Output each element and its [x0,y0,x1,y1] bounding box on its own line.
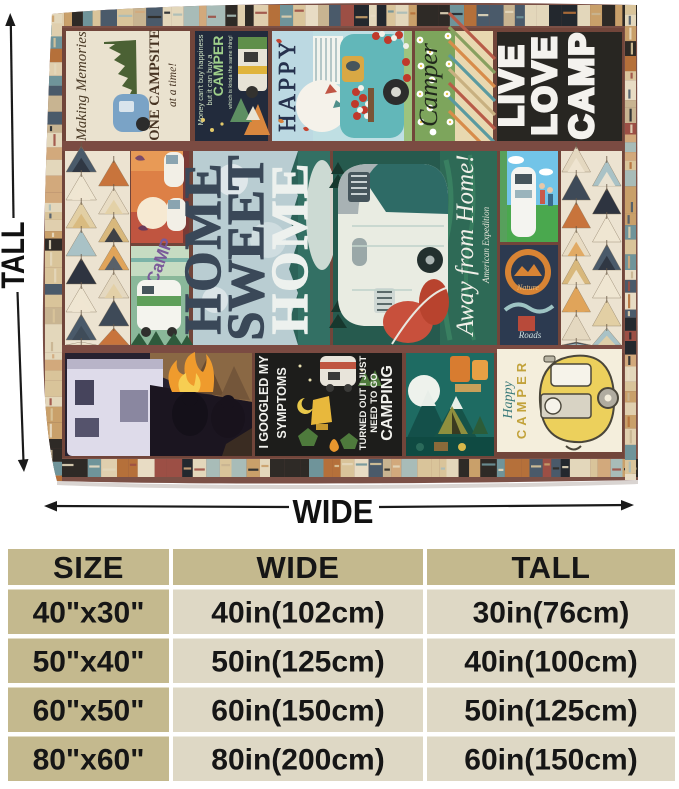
svg-text:at a time!: at a time! [167,63,179,107]
svg-text:30in(76cm): 30in(76cm) [473,597,630,630]
svg-text:HOME: HOME [262,162,319,335]
svg-text:50"x40": 50"x40" [33,646,145,679]
svg-text:SIZE: SIZE [53,550,124,585]
svg-text:which is kinda the same thing!: which is kinda the same thing! [228,35,234,110]
svg-text:WIDE: WIDE [293,493,374,530]
svg-text:WIDE: WIDE [257,550,340,585]
svg-text:CAMPER: CAMPER [514,359,529,439]
svg-text:40in(102cm): 40in(102cm) [211,597,384,630]
svg-text:50in(125cm): 50in(125cm) [464,695,637,728]
svg-text:LOVE: LOVE [526,35,564,136]
svg-text:Roads: Roads [518,330,542,340]
svg-text:80"x60": 80"x60" [33,744,145,777]
svg-text:ONE CAMPSITE: ONE CAMPSITE [147,29,163,141]
svg-text:40in(100cm): 40in(100cm) [464,646,637,679]
svg-text:American Expedition: American Expedition [481,206,491,284]
svg-text:Making Memories: Making Memories [74,31,90,142]
svg-text:60"x50": 60"x50" [33,695,145,728]
svg-text:Nature: Nature [516,283,539,292]
svg-text:CAMPER: CAMPER [210,36,226,97]
svg-text:Away from Home!: Away from Home! [452,155,479,338]
svg-text:Money can't buy happiness: Money can't buy happiness [196,34,205,125]
svg-text:TURNED OUT I JUST: TURNED OUT I JUST [358,356,369,451]
svg-text:TALL: TALL [0,222,31,289]
svg-text:40"x30": 40"x30" [33,597,145,630]
svg-text:TALL: TALL [512,550,591,585]
svg-text:CAMPING: CAMPING [379,365,396,441]
svg-text:SYMPTOMS: SYMPTOMS [275,367,289,438]
svg-text:60in(150cm): 60in(150cm) [211,695,384,728]
svg-text:80in(200cm): 80in(200cm) [211,744,384,777]
svg-text:HAPPY: HAPPY [275,38,301,132]
svg-text:60in(150cm): 60in(150cm) [464,744,637,777]
svg-text:CAMP: CAMP [563,31,601,139]
svg-text:50in(125cm): 50in(125cm) [211,646,384,679]
svg-text:Camper: Camper [414,42,443,127]
svg-text:I GOOGLED MY: I GOOGLED MY [257,355,271,449]
